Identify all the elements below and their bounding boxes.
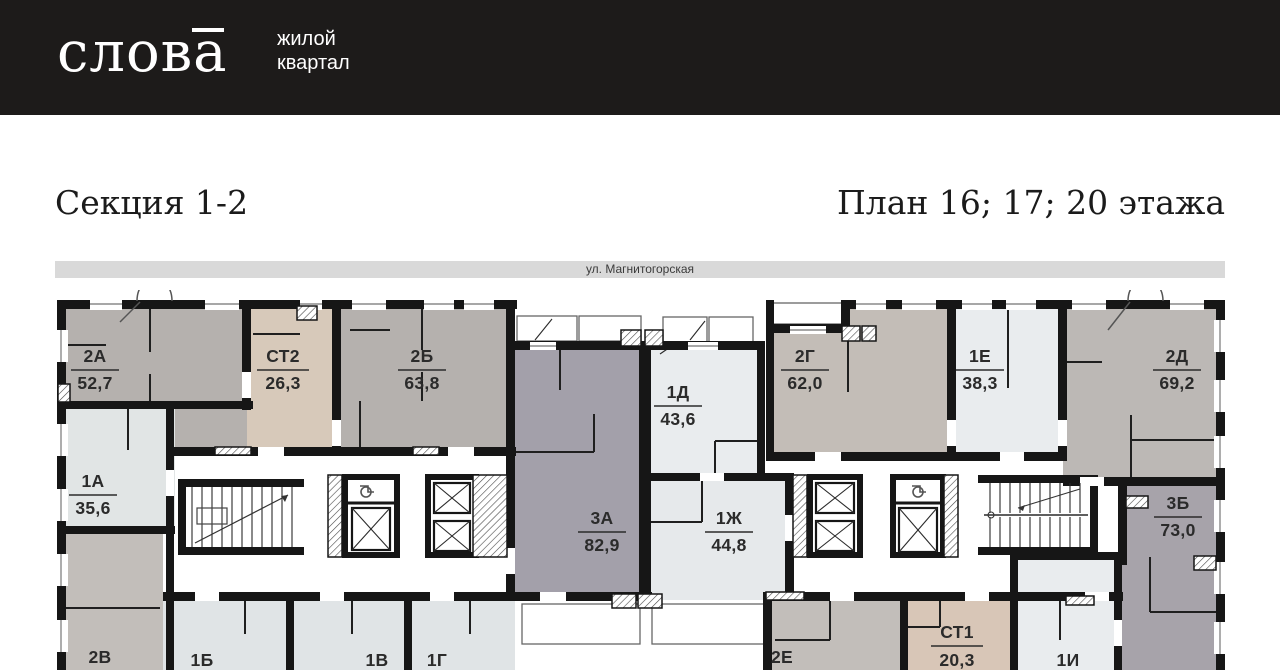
- staircase-right-icon: [984, 483, 1088, 547]
- svg-text:26,3: 26,3: [265, 373, 300, 393]
- unit-1v: [290, 592, 408, 670]
- shaft-hatch-right-1: [793, 475, 807, 557]
- tagline-line1: жилой: [277, 27, 350, 51]
- svg-text:35,6: 35,6: [75, 498, 110, 518]
- brand-tagline: жилой квартал: [277, 27, 350, 75]
- unit-3a: [512, 345, 645, 600]
- label-1v: 1В: [366, 650, 389, 670]
- svg-text:43,6: 43,6: [660, 409, 695, 429]
- floor-plan-title: План 16; 17; 20 этажа: [837, 183, 1225, 222]
- svg-text:82,9: 82,9: [584, 535, 619, 555]
- svg-text:2Е: 2Е: [771, 647, 793, 667]
- svg-text:52,7: 52,7: [77, 373, 112, 393]
- label-2e: 2Е: [771, 647, 793, 667]
- street-label: ул. Магнитогорская: [55, 261, 1225, 278]
- section-title: Секция 1-2: [55, 183, 248, 222]
- brand-logo: слова: [57, 18, 228, 88]
- svg-text:44,8: 44,8: [711, 535, 746, 555]
- shaft-hatch-left-2: [473, 475, 507, 557]
- svg-text:63,8: 63,8: [404, 373, 439, 393]
- floor-plan: 2А 52,7 СТ2 26,3 2Б 63,8 1Д 43,6 2Г: [0, 290, 1280, 670]
- svg-text:1Г: 1Г: [427, 650, 447, 670]
- shaft-hatch-right-2: [944, 475, 958, 557]
- svg-text:1В: 1В: [366, 650, 389, 670]
- shaft-hatch-left-1: [328, 475, 342, 557]
- unit-1g: [408, 592, 515, 670]
- svg-text:СТ2: СТ2: [266, 346, 300, 366]
- staircase-left-icon: [192, 487, 292, 547]
- svg-text:3А: 3А: [591, 508, 614, 528]
- page: слова жилой квартал Секция 1-2 План 16; …: [0, 0, 1280, 670]
- street-bar: ул. Магнитогорская: [55, 261, 1225, 278]
- header: слова жилой квартал: [0, 0, 1280, 115]
- tagline-line2: квартал: [277, 51, 350, 75]
- svg-text:1А: 1А: [82, 471, 105, 491]
- svg-text:3Б: 3Б: [1167, 493, 1190, 513]
- svg-text:1Ж: 1Ж: [716, 508, 742, 528]
- entrance-canopy-left: [522, 604, 640, 644]
- label-1i: 1И: [1057, 650, 1080, 670]
- unit-1b: [163, 592, 290, 670]
- label-2v: 2В: [89, 647, 112, 667]
- svg-text:СТ1: СТ1: [940, 622, 974, 642]
- svg-text:62,0: 62,0: [787, 373, 822, 393]
- svg-text:38,3: 38,3: [962, 373, 997, 393]
- svg-text:1Д: 1Д: [667, 382, 690, 402]
- svg-text:73,0: 73,0: [1160, 520, 1195, 540]
- svg-text:1Б: 1Б: [191, 650, 214, 670]
- label-1g: 1Г: [427, 650, 447, 670]
- svg-text:1Е: 1Е: [969, 346, 991, 366]
- svg-text:2Д: 2Д: [1166, 346, 1189, 366]
- svg-text:2В: 2В: [89, 647, 112, 667]
- label-1b: 1Б: [191, 650, 214, 670]
- svg-text:2Г: 2Г: [795, 346, 815, 366]
- svg-text:2А: 2А: [84, 346, 107, 366]
- svg-text:20,3: 20,3: [939, 650, 974, 670]
- svg-text:2Б: 2Б: [411, 346, 434, 366]
- entrance-canopy-right: [652, 604, 770, 644]
- svg-text:1И: 1И: [1057, 650, 1080, 670]
- brand-macron-bar: [192, 28, 224, 32]
- svg-text:69,2: 69,2: [1159, 373, 1194, 393]
- unit-2d: [1063, 300, 1225, 483]
